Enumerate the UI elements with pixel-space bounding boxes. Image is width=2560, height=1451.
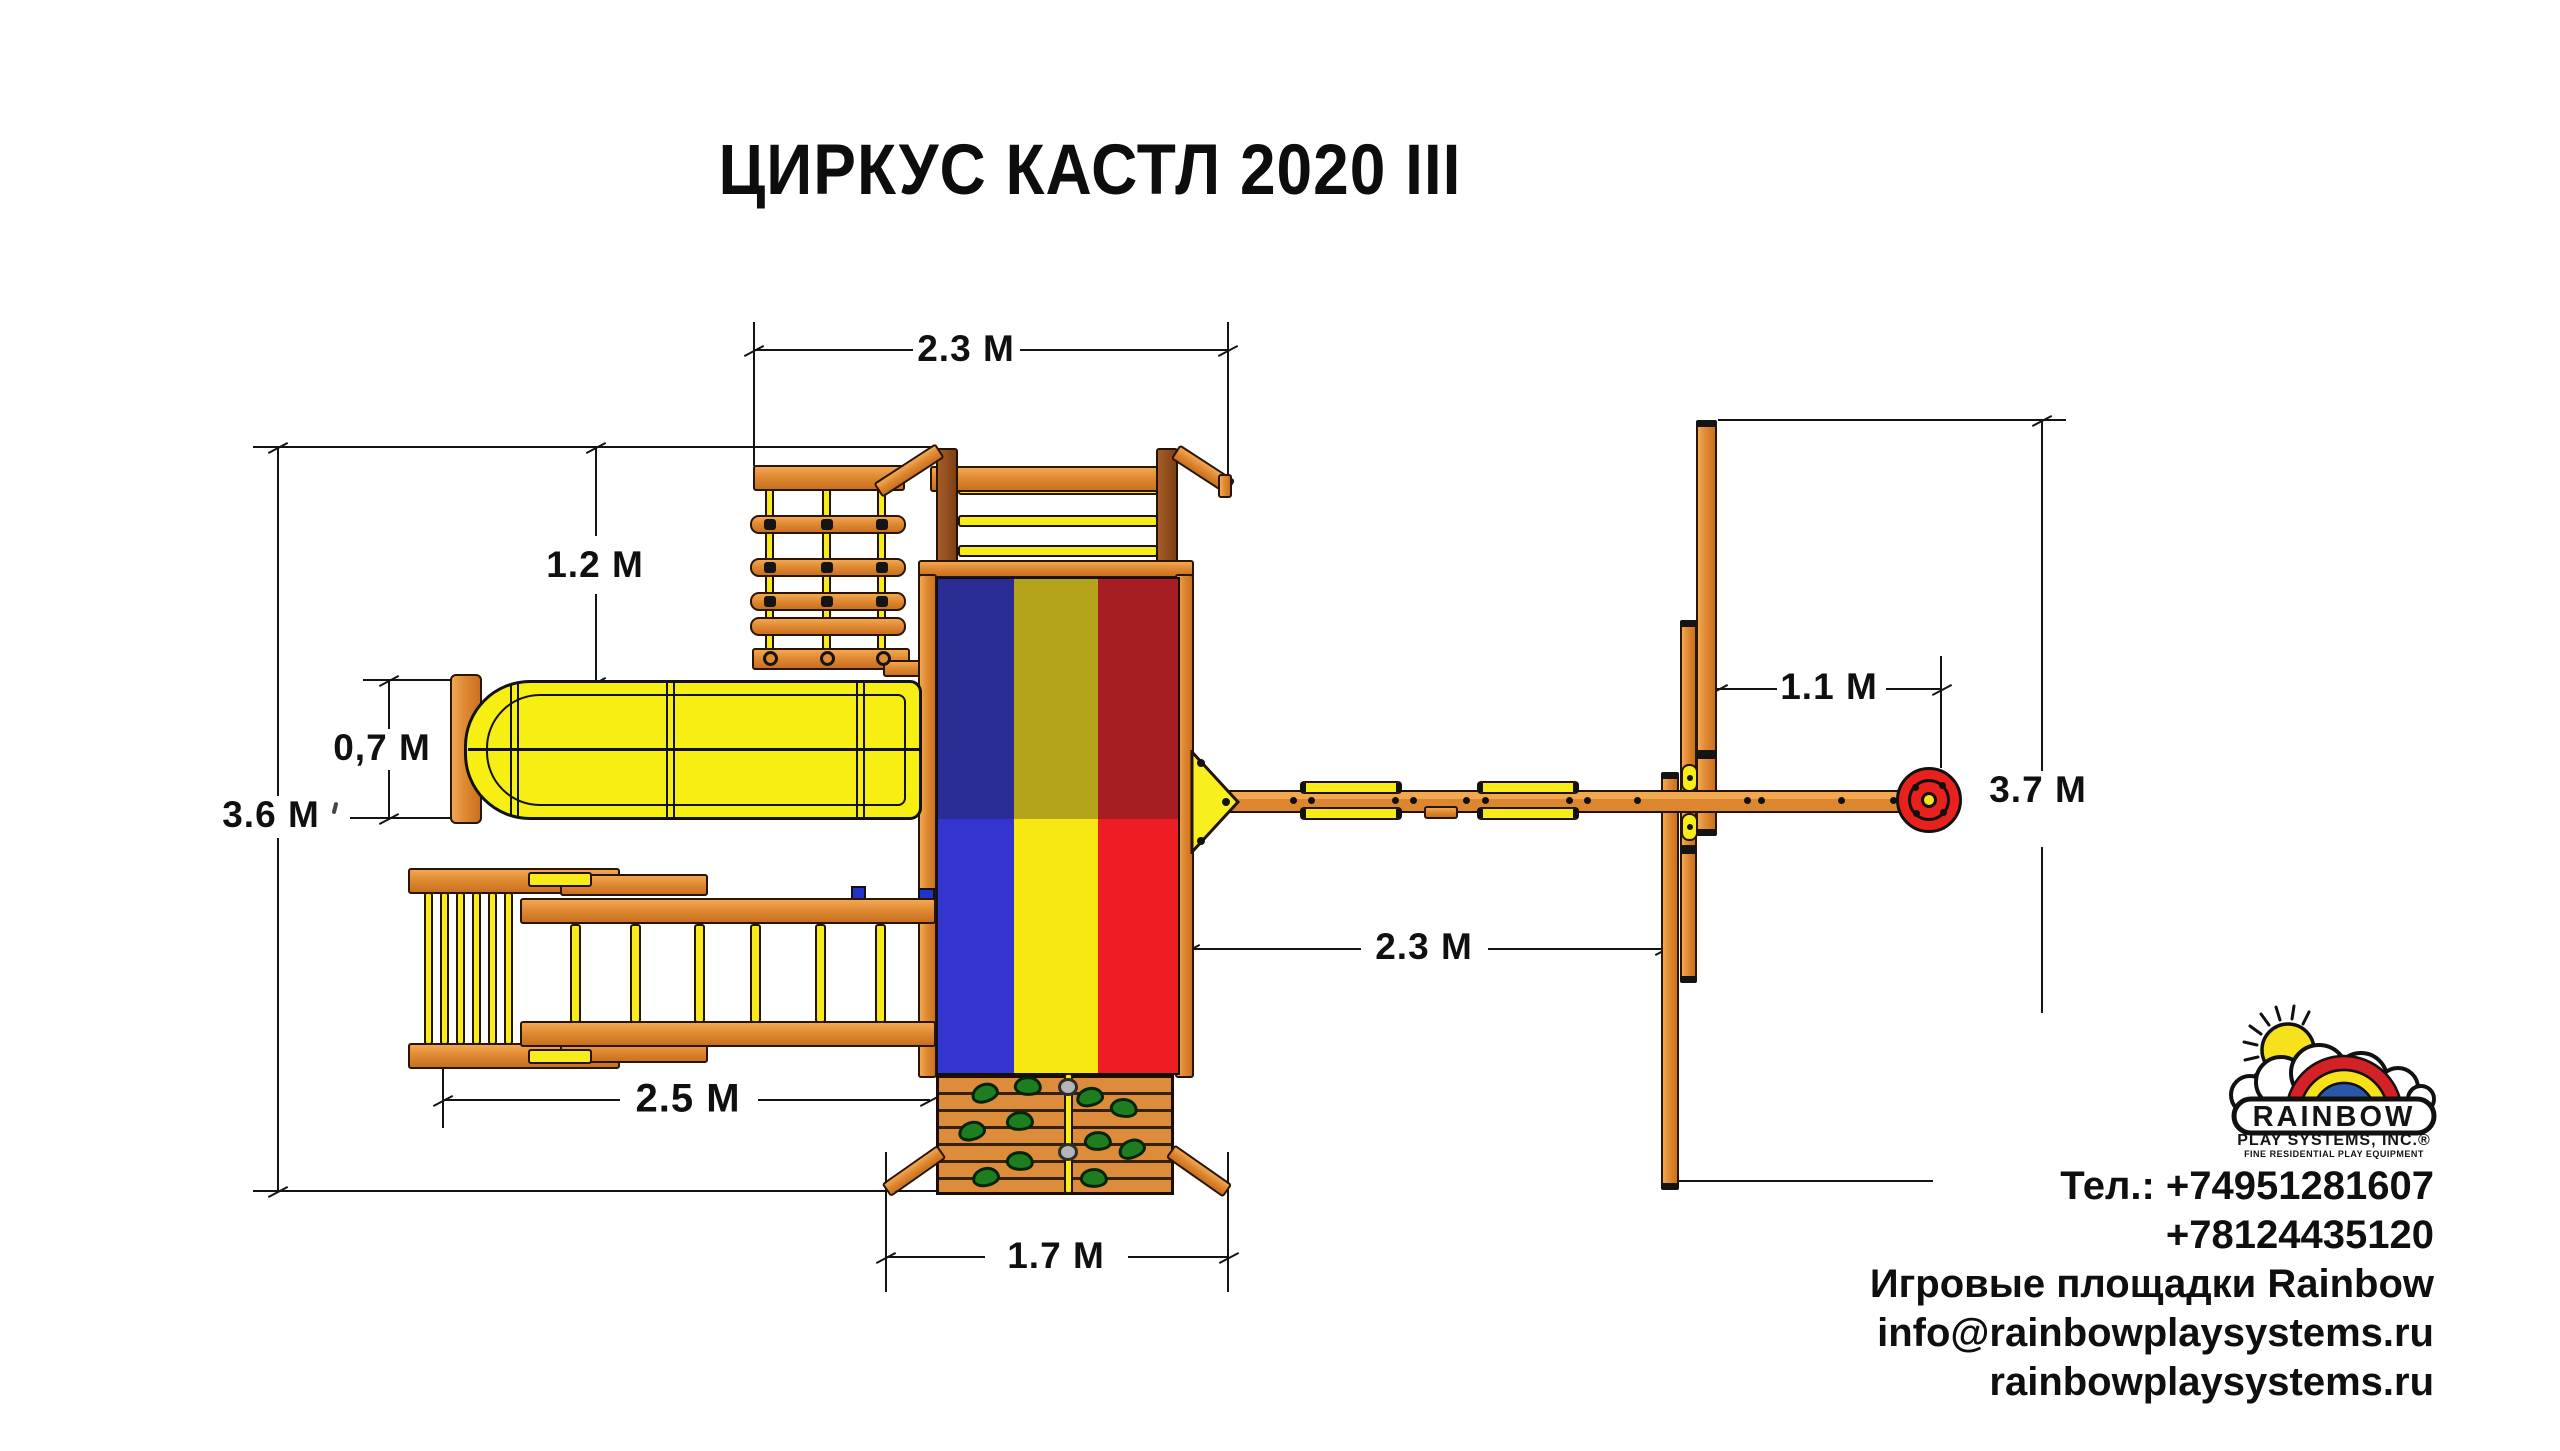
- beam-bolt: [1290, 797, 1297, 804]
- rope-curl: [876, 651, 891, 666]
- canopy-stripe-red-dark: [1098, 579, 1178, 819]
- contact-email: info@rainbowplaysystems.ru: [1870, 1309, 2434, 1358]
- beam-bolt: [1744, 797, 1751, 804]
- dim-line-tire-offset: [1886, 688, 1942, 690]
- ladder-rung: [875, 924, 886, 1023]
- post-cap: [1661, 772, 1679, 779]
- canopy-stripe-blue-dark: [938, 579, 1014, 819]
- monkey-bar-rung: [958, 515, 1158, 527]
- ramp-rung: [488, 892, 497, 1045]
- swing-seat: [1300, 807, 1402, 820]
- rope-clamp: [764, 562, 776, 573]
- ramp-rung: [504, 892, 513, 1045]
- brace-plate: [1218, 474, 1232, 498]
- rope-clamp: [876, 562, 888, 573]
- tire-bolt: [1939, 782, 1946, 789]
- ramp-rung: [424, 892, 433, 1045]
- monkey-bar-rung: [958, 545, 1158, 557]
- rope-curl: [820, 651, 835, 666]
- dim-line-total-width: [2041, 847, 2043, 1013]
- dim-line-total-depth: [277, 446, 279, 796]
- slide-tube-midline: [468, 748, 920, 751]
- dim-ext-line: [885, 1152, 887, 1292]
- dim-label-ramp-length: 2.5 M: [635, 1077, 740, 1122]
- deck-top-rail: [918, 560, 1194, 578]
- dim-ext-line: [1227, 322, 1229, 492]
- rope-clamp: [764, 596, 776, 607]
- swing-frame-post: [1661, 772, 1679, 1190]
- beam-bolt: [1410, 797, 1417, 804]
- beam-bolt: [1482, 797, 1489, 804]
- slide-tube-seam: [517, 684, 519, 816]
- post-cap: [1661, 1183, 1679, 1190]
- beam-bolt: [1463, 797, 1470, 804]
- ladder-rail: [520, 898, 936, 924]
- beam-bolt: [1838, 797, 1845, 804]
- dim-line-wall-width: [1128, 1256, 1229, 1258]
- canopy-top-row: [936, 577, 1180, 821]
- dim-line-swing-bay: [1189, 948, 1361, 950]
- rope-curl: [763, 651, 778, 666]
- ramp-rung: [472, 892, 481, 1045]
- dim-ext-line: [1227, 1152, 1229, 1292]
- contact-phone-2: +78124435120: [1870, 1211, 2434, 1260]
- ladder-rung: [815, 924, 826, 1023]
- beam-bolt: [1566, 797, 1573, 804]
- tower-post: [1156, 448, 1178, 563]
- swing-hanger: [1681, 813, 1698, 841]
- playset-blueprint: ЦИРКУС КАСТЛ 2020 III 3.6 M 1.2 M 2.3 M: [0, 0, 2560, 1451]
- canopy-bottom-row: [936, 819, 1180, 1075]
- slide-tube-seam: [510, 684, 512, 816]
- rope-ladder-slat: [750, 617, 906, 636]
- post-cap: [1680, 620, 1697, 627]
- tire-bolt: [1940, 809, 1947, 816]
- contact-caption: Игровые площадки Rainbow: [1870, 1260, 2434, 1309]
- ramp-rung: [440, 892, 449, 1045]
- deck-post: [918, 574, 937, 1078]
- ramp-latch: [528, 1049, 592, 1064]
- rope-clamp: [821, 596, 833, 607]
- tire-bolt: [1912, 784, 1919, 791]
- beam-bolt: [1584, 797, 1591, 804]
- logo-company-text: PLAY SYSTEMS, INC.®: [2237, 1132, 2431, 1149]
- dim-line-total-depth: [277, 838, 279, 1192]
- ladder-rung: [750, 924, 761, 1023]
- ramp-latch: [528, 872, 592, 887]
- logo-brand-text: RAINBOW: [2253, 1101, 2416, 1133]
- page-title: ЦИРКУС КАСТЛ 2020 III: [520, 128, 1660, 211]
- dim-line-wall-width: [885, 1256, 985, 1258]
- dim-line-top-span: [753, 349, 913, 351]
- swing-hanger: [1681, 764, 1698, 792]
- slide-tube-seam: [673, 683, 675, 817]
- dim-label-slide-width: 0,7 M: [333, 727, 431, 769]
- dim-line-slide-width: [388, 770, 390, 819]
- dim-line-slide-width: [388, 679, 390, 729]
- contact-block: Тел.: +74951281607 +78124435120 Игровые …: [1870, 1162, 2434, 1407]
- post-band: [1680, 845, 1697, 854]
- dim-line-ramp-length: [758, 1099, 930, 1101]
- dim-tick: [1932, 684, 1952, 696]
- ladder-rung: [570, 924, 581, 1023]
- beam-bolt: [1392, 797, 1399, 804]
- dim-tick: [1219, 1252, 1239, 1264]
- contact-phone-1: Тел.: +74951281607: [1870, 1162, 2434, 1211]
- swing-seat: [1477, 781, 1579, 794]
- slide-tube-seam: [666, 683, 668, 817]
- ramp-rung: [456, 892, 465, 1045]
- post-cap: [1680, 976, 1697, 983]
- wall-brace: [1166, 1144, 1233, 1197]
- rope-knot: [1058, 1143, 1078, 1161]
- tire-swing: [1896, 767, 1962, 833]
- beam-bolt: [1634, 797, 1641, 804]
- rope-clamp: [876, 596, 888, 607]
- dim-line-deck-offset: [595, 594, 597, 682]
- post-cap: [1696, 829, 1717, 836]
- swing-frame-post: [1696, 420, 1717, 836]
- canopy-stripe-yellow: [1014, 819, 1098, 1073]
- swing-seat: [1477, 807, 1579, 820]
- dim-line-swing-bay: [1488, 948, 1665, 950]
- rope-clamp: [876, 519, 888, 530]
- dim-label-tire-offset: 1.1 M: [1780, 666, 1878, 708]
- canopy-stripe-blue: [938, 819, 1014, 1073]
- dim-label-total-width: 3.7 M: [1989, 769, 2087, 811]
- dim-label-deck-offset: 1.2 M: [546, 544, 644, 586]
- dim-ext-line: [753, 322, 755, 466]
- dim-ext-line: [253, 1190, 938, 1192]
- rope-clamp: [821, 562, 833, 573]
- canopy-stripe-gold-dark: [1014, 579, 1098, 819]
- dim-label-wall-width: 1.7 M: [1007, 1235, 1105, 1277]
- dim-line-tire-offset: [1717, 688, 1777, 690]
- monkey-bar-rail: [930, 466, 1178, 492]
- post-cap: [1696, 420, 1717, 427]
- dim-line-ramp-length: [442, 1099, 620, 1101]
- stray-mark: [332, 802, 339, 815]
- ladder-rail: [520, 1021, 936, 1047]
- beam-bolt: [1758, 797, 1765, 804]
- rope-knot: [1058, 1078, 1078, 1096]
- logo-tagline-text: FINE RESIDENTIAL PLAY EQUIPMENT: [2244, 1149, 2424, 1159]
- canopy-stripe-red: [1098, 819, 1178, 1073]
- beam-gusset-triangle: [1190, 750, 1242, 854]
- post-band: [1696, 750, 1717, 759]
- rainbow-logo: RAINBOW PLAY SYSTEMS, INC.® FINE RESIDEN…: [2214, 1002, 2446, 1160]
- slide-tube-seam: [863, 683, 865, 817]
- seat-connector: [1424, 806, 1458, 819]
- rope-clamp: [821, 519, 833, 530]
- dim-line-top-span: [1020, 349, 1229, 351]
- tire-swivel: [1921, 792, 1937, 808]
- tower-post: [936, 448, 958, 563]
- dim-line-total-width: [2041, 419, 2043, 771]
- rope-clamp: [764, 519, 776, 530]
- dim-ext-line: [1718, 419, 2066, 421]
- dim-label-top-span: 2.3 M: [917, 328, 1015, 370]
- tire-bolt: [1913, 810, 1920, 817]
- dim-ext-line: [363, 679, 453, 681]
- dim-label-swing-bay: 2.3 M: [1375, 926, 1473, 968]
- slide-tube-seam: [856, 683, 858, 817]
- swing-seat: [1300, 781, 1402, 794]
- dim-ext-line: [1940, 656, 1942, 768]
- dim-ext-line: [350, 817, 453, 819]
- ladder-rung: [630, 924, 641, 1023]
- contact-website: rainbowplaysystems.ru: [1870, 1358, 2434, 1407]
- ladder-rung: [694, 924, 705, 1023]
- dim-line-deck-offset: [595, 446, 597, 536]
- beam-bolt: [1308, 797, 1315, 804]
- dim-label-total-depth: 3.6 M: [222, 794, 320, 836]
